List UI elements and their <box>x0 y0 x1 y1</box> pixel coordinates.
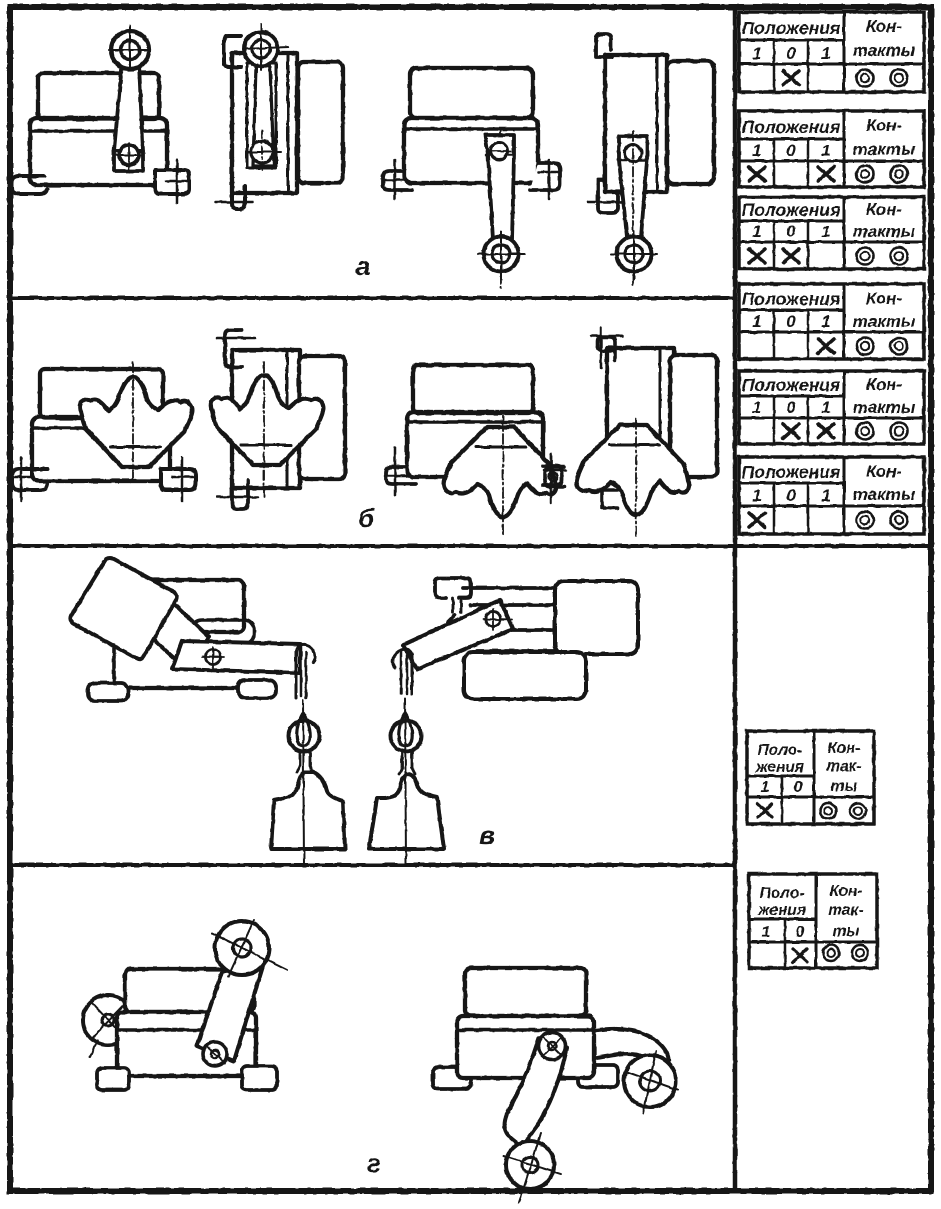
svg-text:1: 1 <box>821 486 830 505</box>
svg-text:0: 0 <box>794 779 803 796</box>
svg-text:1: 1 <box>752 312 761 331</box>
svg-text:такты: такты <box>853 485 916 504</box>
svg-text:Положения: Положения <box>742 375 841 395</box>
svg-text:1: 1 <box>821 398 830 417</box>
svg-text:жения: жения <box>755 759 804 776</box>
svg-text:Поло-: Поло- <box>758 742 803 759</box>
svg-text:ты: ты <box>830 778 857 795</box>
svg-text:Кон-: Кон- <box>828 740 861 757</box>
svg-text:0: 0 <box>786 398 796 417</box>
svg-text:Кон-: Кон- <box>866 375 902 394</box>
svg-text:а: а <box>356 251 370 281</box>
svg-text:1: 1 <box>761 779 770 796</box>
svg-text:Кон-: Кон- <box>866 116 902 135</box>
svg-text:так-: так- <box>828 902 863 919</box>
svg-text:1: 1 <box>821 312 830 331</box>
svg-text:0: 0 <box>786 141 796 160</box>
svg-text:ты: ты <box>832 923 859 940</box>
svg-text:так-: так- <box>826 758 861 775</box>
svg-text:1: 1 <box>752 486 761 505</box>
svg-text:Кон-: Кон- <box>866 17 902 36</box>
svg-text:1: 1 <box>821 44 830 63</box>
svg-text:1: 1 <box>821 141 830 160</box>
svg-text:0: 0 <box>796 924 805 941</box>
svg-text:такты: такты <box>853 398 916 417</box>
svg-text:такты: такты <box>853 312 916 331</box>
svg-text:такты: такты <box>853 41 916 60</box>
svg-text:0: 0 <box>786 44 796 63</box>
svg-text:Поло-: Поло- <box>760 885 805 902</box>
svg-text:0: 0 <box>786 222 796 241</box>
svg-text:Положения: Положения <box>742 289 841 309</box>
svg-text:Кон-: Кон- <box>830 883 863 900</box>
svg-text:0: 0 <box>786 486 796 505</box>
svg-text:в: в <box>479 820 495 850</box>
svg-text:0: 0 <box>786 312 796 331</box>
svg-text:1: 1 <box>752 398 761 417</box>
svg-text:1: 1 <box>752 141 761 160</box>
svg-text:Кон-: Кон- <box>866 462 902 481</box>
svg-text:Положения: Положения <box>742 200 841 220</box>
svg-text:Кон-: Кон- <box>866 200 902 219</box>
svg-text:такты: такты <box>853 140 916 159</box>
svg-text:Положения: Положения <box>742 117 841 137</box>
svg-text:жения: жения <box>757 902 806 919</box>
svg-text:1: 1 <box>821 222 830 241</box>
svg-text:Положения: Положения <box>742 462 841 482</box>
svg-text:1: 1 <box>762 924 771 941</box>
svg-text:такты: такты <box>853 222 916 241</box>
svg-text:Кон-: Кон- <box>866 289 902 308</box>
svg-text:б: б <box>358 503 375 533</box>
svg-text:1: 1 <box>752 222 761 241</box>
svg-text:Положения: Положения <box>742 18 841 38</box>
svg-text:г: г <box>367 1148 381 1178</box>
svg-text:1: 1 <box>752 44 761 63</box>
